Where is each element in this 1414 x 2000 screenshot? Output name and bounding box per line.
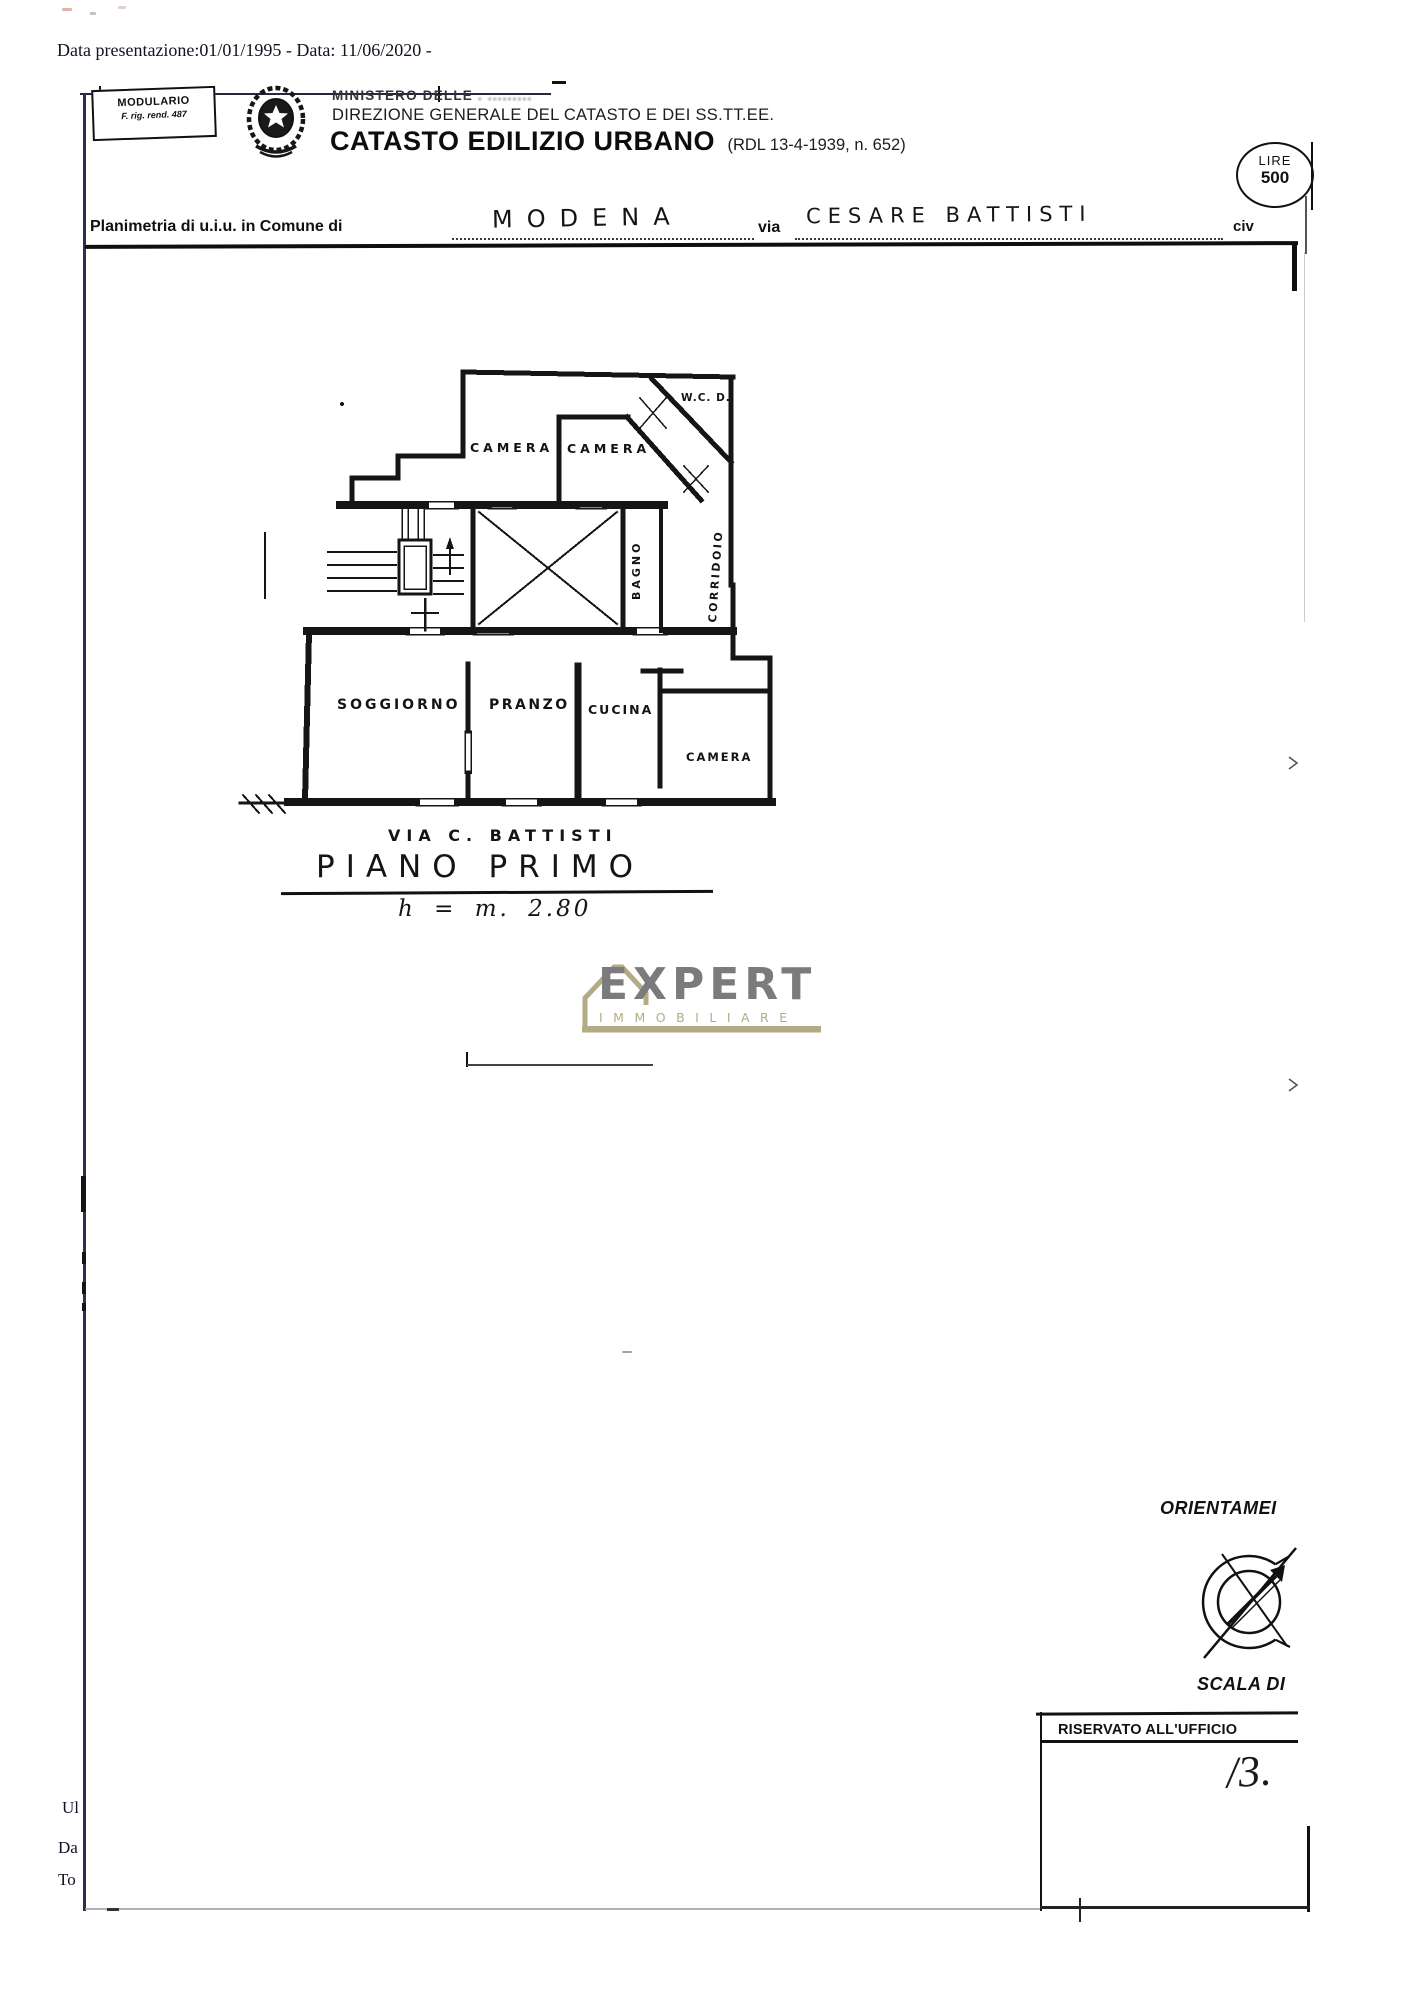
ministry-smudge: . ......... bbox=[478, 88, 532, 103]
floor-label: PIANO PRIMO bbox=[316, 849, 644, 885]
modulario-box: MODULARIO F. rig. rend. 487 bbox=[91, 86, 217, 141]
catasto-title: CATASTO EDILIZIO URBANO bbox=[330, 126, 715, 156]
comune-handwritten: MODENA bbox=[492, 202, 684, 233]
clipped-text-1: Ul bbox=[62, 1798, 79, 1818]
lire-stamp: LIRE 500 bbox=[1236, 142, 1314, 208]
room-label-pranzo: PRANZO bbox=[489, 697, 570, 713]
clipped-text-2: Da bbox=[58, 1838, 78, 1858]
room-label-soggiorno: SOGGIORNO bbox=[337, 697, 460, 713]
stamp-side-line bbox=[1311, 142, 1313, 210]
orientation-label: ORIENTAMEI bbox=[1160, 1498, 1277, 1519]
agency-watermark: EXPERT IMMOBILIARE bbox=[578, 955, 828, 1040]
via-label: via bbox=[758, 219, 780, 237]
office-handwritten-number: /3. bbox=[1224, 1744, 1273, 1798]
scan-smudge bbox=[82, 1303, 86, 1311]
office-box-bottom-tick bbox=[1079, 1898, 1081, 1922]
date-line: Data presentazione:01/01/1995 - Data: 11… bbox=[57, 40, 432, 61]
cadastral-document-page: Data presentazione:01/01/1995 - Data: 11… bbox=[0, 0, 1414, 2000]
ministry-text: MINISTERO DELLE bbox=[332, 88, 473, 103]
scale-label: SCALA DI bbox=[1197, 1674, 1285, 1695]
room-label-wc: W.C. D. bbox=[681, 392, 731, 404]
room-label-camera-3: CAMERA bbox=[686, 750, 752, 764]
room-label-camera-2: CAMERA bbox=[567, 441, 650, 456]
room-label-cucina: CUCINA bbox=[588, 702, 653, 717]
watermark-brand: EXPERT bbox=[598, 959, 816, 1010]
chevron-mark-icon bbox=[1286, 1077, 1300, 1098]
clipped-text-3: To bbox=[58, 1870, 76, 1890]
lire-label: LIRE bbox=[1238, 153, 1312, 168]
scan-smudge bbox=[81, 1176, 86, 1212]
room-label-bagno: BAGNO bbox=[630, 541, 643, 600]
office-box-title-underline bbox=[1041, 1740, 1298, 1743]
office-box-right-border bbox=[1307, 1826, 1310, 1912]
watermark-subtitle: IMMOBILIARE bbox=[599, 1010, 798, 1025]
frame-corner-stub bbox=[1292, 244, 1297, 291]
lire-value: 500 bbox=[1238, 168, 1312, 188]
frame-right-segment bbox=[1305, 196, 1307, 254]
scan-artifact bbox=[62, 8, 72, 11]
civ-label: civ bbox=[1233, 218, 1254, 235]
modulario-subtitle: F. rig. rend. 487 bbox=[94, 108, 214, 122]
catasto-title-line: CATASTO EDILIZIO URBANO (RDL 13-4-1939, … bbox=[330, 126, 906, 157]
left-page-border bbox=[83, 94, 86, 1911]
scan-artifact bbox=[90, 12, 96, 15]
chevron-mark-icon bbox=[1286, 755, 1300, 776]
scan-artifact bbox=[622, 1351, 632, 1353]
height-label: h = m. 2.80 bbox=[398, 896, 591, 922]
direzione-line: DIREZIONE GENERALE DEL CATASTO E DEI SS.… bbox=[332, 106, 774, 125]
page-bottom-border bbox=[85, 1908, 1040, 1910]
compass-icon bbox=[1192, 1540, 1307, 1665]
scan-artifact bbox=[118, 6, 126, 9]
office-box-title: RISERVATO ALL'UFFICIO bbox=[1058, 1722, 1237, 1738]
street-label: VIA C. BATTISTI bbox=[388, 826, 618, 845]
page-bottom-dash bbox=[107, 1908, 119, 1911]
scan-smudge bbox=[82, 1252, 86, 1264]
ministry-line: MINISTERO DELLE . ......... bbox=[332, 88, 532, 103]
planimetria-label: Planimetria di u.i.u. in Comune di bbox=[90, 218, 342, 236]
room-label-camera-1: CAMERA bbox=[470, 440, 553, 455]
office-box-top-border bbox=[1036, 1711, 1298, 1715]
frame-right-faint bbox=[1304, 252, 1305, 622]
frame-top-border bbox=[85, 241, 1298, 249]
via-handwritten: CESARE BATTISTI bbox=[806, 202, 1093, 228]
ruler-line bbox=[467, 1064, 653, 1066]
rule-end-dash bbox=[552, 81, 566, 84]
catasto-reference: (RDL 13-4-1939, n. 652) bbox=[727, 136, 905, 154]
italy-emblem-icon bbox=[243, 82, 309, 162]
scan-smudge bbox=[82, 1282, 86, 1294]
